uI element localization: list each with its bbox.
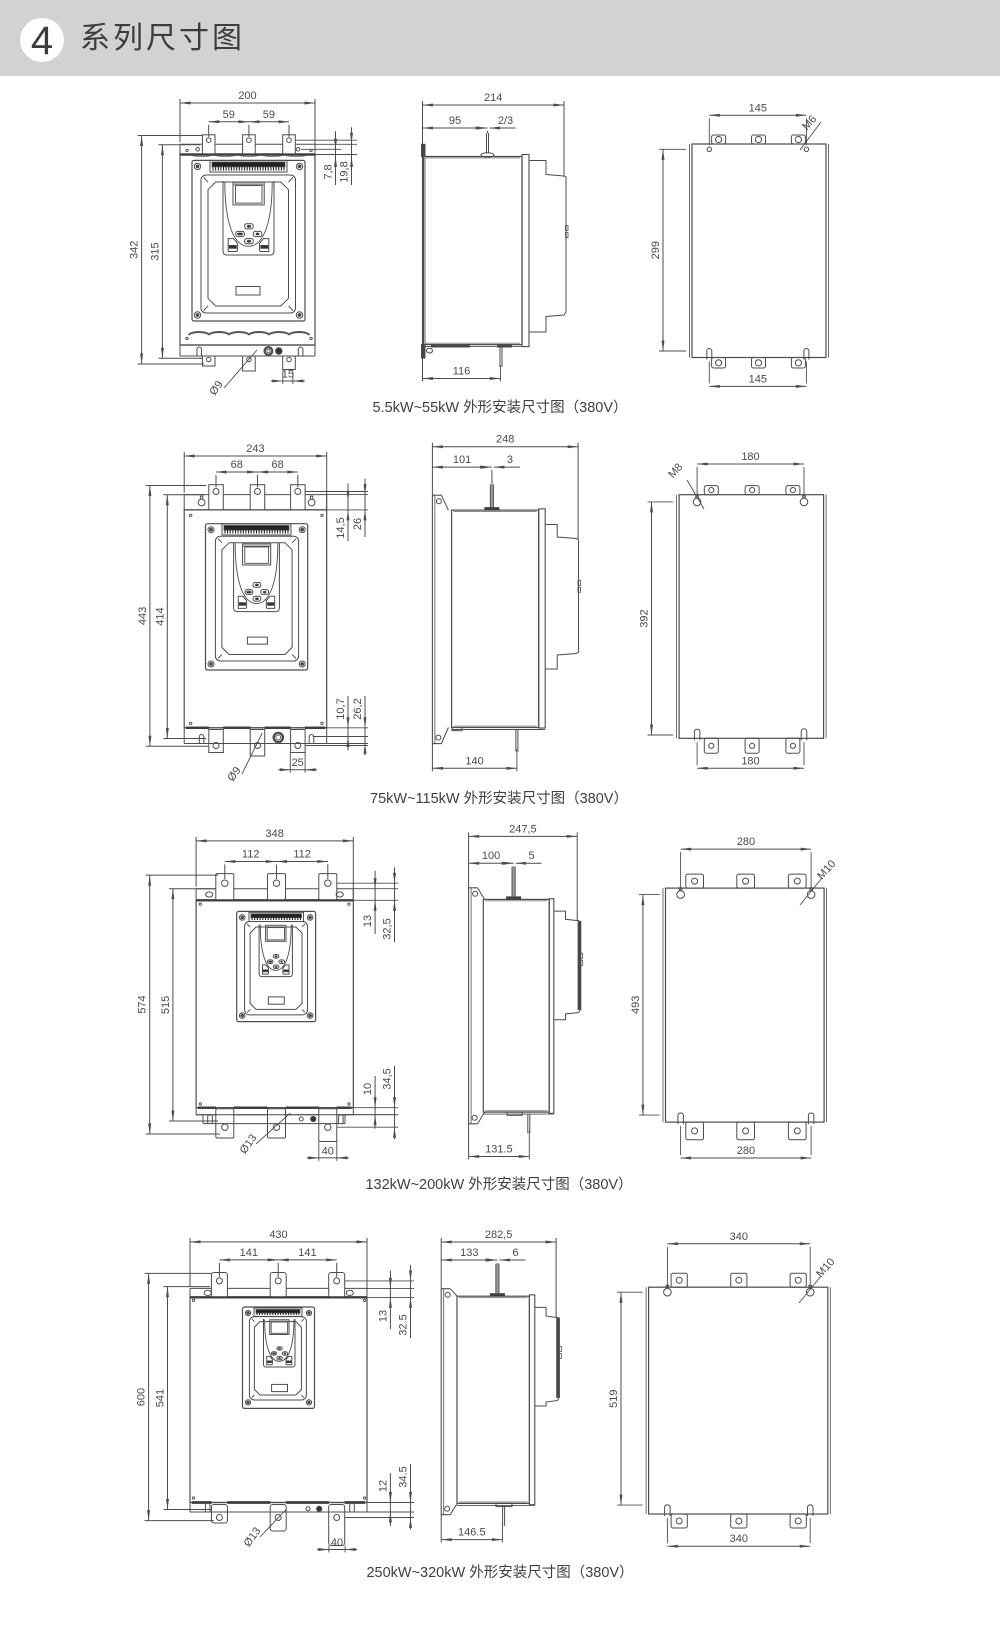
svg-text:493: 493 — [630, 996, 642, 1014]
svg-text:145: 145 — [749, 102, 767, 114]
svg-text:340: 340 — [730, 1231, 748, 1243]
svg-text:59: 59 — [223, 109, 235, 121]
svg-text:141: 141 — [240, 1247, 258, 1259]
svg-text:26: 26 — [352, 518, 364, 530]
svg-text:19,8: 19,8 — [339, 161, 351, 182]
svg-text:101: 101 — [453, 454, 471, 466]
svg-text:180: 180 — [741, 755, 759, 767]
svg-text:6: 6 — [512, 1247, 518, 1259]
svg-text:112: 112 — [242, 849, 260, 861]
svg-text:247,5: 247,5 — [509, 823, 537, 835]
svg-text:541: 541 — [155, 1389, 167, 1407]
svg-text:系列尺寸图: 系列尺寸图 — [80, 22, 245, 55]
svg-text:2/3: 2/3 — [498, 115, 513, 127]
svg-text:414: 414 — [154, 607, 166, 625]
svg-text:75kW~115kW 外形安装尺寸图（380V）: 75kW~115kW 外形安装尺寸图（380V） — [370, 790, 628, 807]
svg-text:5: 5 — [529, 850, 535, 862]
svg-text:14,5: 14,5 — [335, 517, 347, 538]
svg-text:34,5: 34,5 — [382, 1068, 394, 1089]
svg-text:32,5: 32,5 — [382, 918, 394, 939]
svg-text:180: 180 — [741, 451, 759, 463]
svg-text:40: 40 — [322, 1145, 334, 1157]
svg-text:13: 13 — [362, 915, 374, 927]
svg-text:519: 519 — [608, 1390, 620, 1408]
svg-text:95: 95 — [449, 115, 461, 127]
svg-text:146.5: 146.5 — [458, 1527, 486, 1539]
svg-text:59: 59 — [263, 109, 275, 121]
svg-text:342: 342 — [129, 241, 141, 259]
svg-text:574: 574 — [137, 995, 149, 1013]
svg-text:282,5: 282,5 — [485, 1229, 513, 1241]
svg-text:280: 280 — [737, 836, 755, 848]
svg-text:141: 141 — [298, 1247, 316, 1259]
svg-text:443: 443 — [137, 607, 149, 625]
svg-text:131.5: 131.5 — [485, 1144, 513, 1156]
svg-text:68: 68 — [271, 459, 283, 471]
svg-text:348: 348 — [266, 828, 284, 840]
svg-text:133: 133 — [460, 1247, 478, 1259]
svg-text:140: 140 — [465, 755, 483, 767]
svg-text:26,2: 26,2 — [352, 698, 364, 719]
svg-text:112: 112 — [293, 849, 311, 861]
svg-text:243: 243 — [246, 443, 264, 455]
svg-text:13: 13 — [377, 1310, 389, 1322]
svg-text:248: 248 — [496, 434, 514, 446]
svg-text:340: 340 — [730, 1533, 748, 1545]
svg-text:7,8: 7,8 — [323, 164, 335, 179]
svg-text:250kW~320kW 外形安装尺寸图（380V）: 250kW~320kW 外形安装尺寸图（380V） — [366, 1564, 633, 1581]
svg-text:392: 392 — [639, 609, 651, 627]
svg-text:32.5: 32.5 — [398, 1314, 410, 1335]
svg-text:68: 68 — [231, 459, 243, 471]
svg-text:10: 10 — [362, 1083, 374, 1095]
svg-text:10,7: 10,7 — [335, 698, 347, 719]
svg-text:132kW~200kW 外形安装尺寸图（380V）: 132kW~200kW 外形安装尺寸图（380V） — [365, 1176, 632, 1193]
svg-text:430: 430 — [269, 1229, 287, 1241]
svg-text:25: 25 — [292, 757, 304, 769]
svg-text:4: 4 — [31, 19, 53, 63]
svg-text:116: 116 — [453, 366, 471, 378]
svg-text:515: 515 — [160, 996, 172, 1014]
svg-text:15: 15 — [282, 369, 294, 381]
svg-text:315: 315 — [149, 242, 161, 260]
svg-text:100: 100 — [482, 850, 500, 862]
svg-text:3: 3 — [507, 454, 513, 466]
svg-text:12: 12 — [377, 1480, 389, 1492]
svg-text:280: 280 — [737, 1145, 755, 1157]
svg-text:214: 214 — [484, 92, 502, 104]
svg-text:600: 600 — [136, 1388, 148, 1406]
svg-text:34.5: 34.5 — [398, 1466, 410, 1487]
svg-text:299: 299 — [650, 241, 662, 259]
svg-text:5.5kW~55kW 外形安装尺寸图（380V）: 5.5kW~55kW 外形安装尺寸图（380V） — [372, 399, 627, 416]
svg-text:145: 145 — [749, 373, 767, 385]
svg-text:40: 40 — [331, 1537, 343, 1549]
svg-text:200: 200 — [238, 90, 256, 102]
